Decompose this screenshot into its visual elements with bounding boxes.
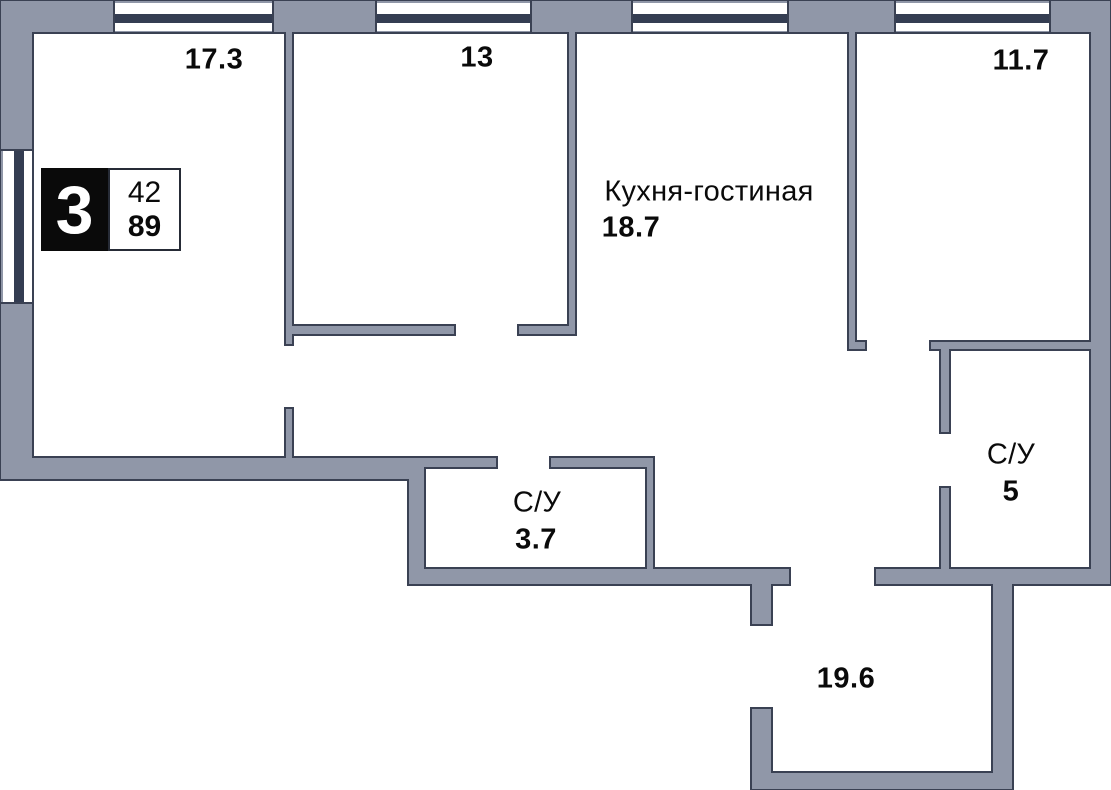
room-11-7-area-label: 11.7 bbox=[993, 45, 1050, 78]
room-17-3-area-label: 17.3 bbox=[185, 44, 243, 77]
plan-badge: 3 42 89 bbox=[41, 168, 181, 251]
door-openings bbox=[283, 323, 952, 708]
door-bathroom-small bbox=[497, 455, 550, 470]
plan-number-top: 42 bbox=[128, 176, 161, 210]
window-3 bbox=[632, 1, 788, 32]
room-13-area-label: 13 bbox=[460, 42, 493, 75]
bathroom-large-name-label: С/У bbox=[987, 439, 1035, 472]
door-bathroom-large bbox=[938, 433, 952, 487]
kitchen-living-area-label: 18.7 bbox=[602, 212, 660, 245]
window-5-left-wall bbox=[1, 150, 32, 303]
passage-hallway bbox=[790, 566, 875, 587]
door-caps bbox=[284, 324, 951, 708]
plan-number-bottom: 89 bbox=[128, 210, 161, 244]
window-2 bbox=[376, 1, 531, 32]
door-room-11-7 bbox=[866, 339, 930, 352]
entrance-door bbox=[749, 625, 774, 708]
floor-plan-drawing bbox=[0, 0, 1111, 790]
room-count: 3 bbox=[56, 176, 94, 244]
bathroom-large-area-label: 5 bbox=[1003, 476, 1020, 509]
floor-plan: 17.3 13 Кухня-гостиная 18.7 11.7 С/У 3.7… bbox=[0, 0, 1111, 790]
hallway-area-label: 19.6 bbox=[817, 663, 875, 696]
walls bbox=[0, 0, 1111, 790]
kitchen-living-name-label: Кухня-гостиная bbox=[604, 176, 813, 209]
window-4 bbox=[895, 1, 1050, 32]
plan-numbers-box: 42 89 bbox=[108, 168, 181, 251]
window-1 bbox=[114, 1, 273, 32]
windows bbox=[1, 1, 1050, 303]
bathroom-small-area-label: 3.7 bbox=[515, 524, 557, 557]
bathroom-small-name-label: С/У bbox=[513, 487, 561, 520]
room-count-box: 3 bbox=[41, 168, 108, 251]
door-room-17-3 bbox=[283, 345, 295, 408]
door-room-13 bbox=[455, 323, 518, 337]
